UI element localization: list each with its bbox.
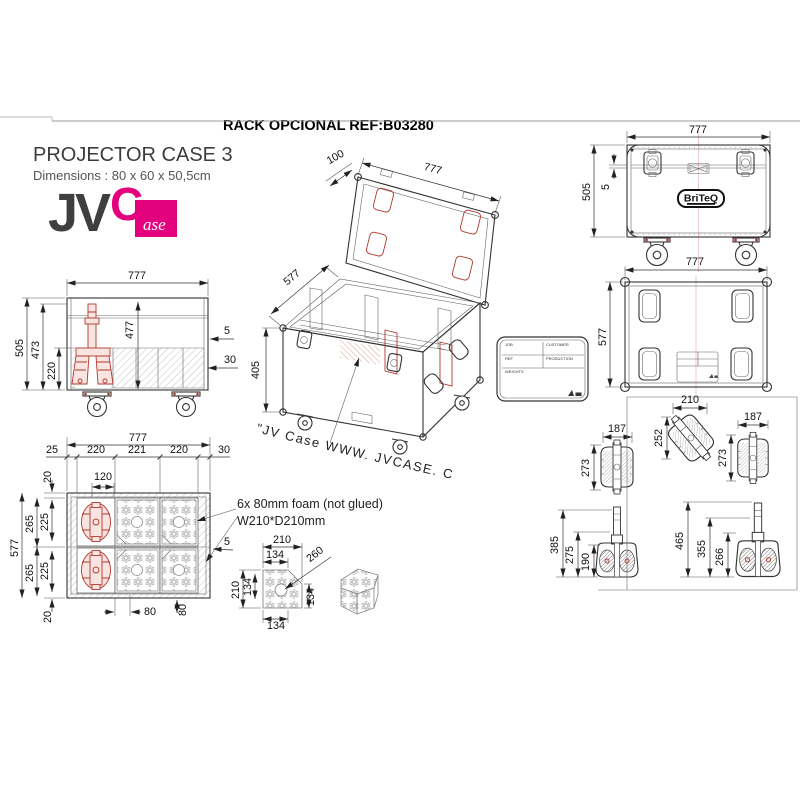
dim-label: 187 bbox=[608, 423, 626, 435]
dim-label: 355 bbox=[696, 540, 708, 558]
dim-label: 220 bbox=[87, 444, 105, 456]
dim-label: 134 bbox=[266, 549, 284, 561]
projector-section bbox=[72, 304, 113, 388]
dim-label: 120 bbox=[94, 471, 112, 483]
dim-label: 187 bbox=[744, 411, 762, 423]
dim-label: 225 bbox=[39, 562, 51, 580]
dim-label: 5 bbox=[600, 184, 612, 190]
dim-label: 273 bbox=[717, 449, 729, 467]
dim-label: 220 bbox=[46, 362, 58, 380]
dim-label: 477 bbox=[124, 321, 136, 339]
dim-label: 20 bbox=[42, 471, 54, 483]
dim-label: 777 bbox=[689, 124, 707, 136]
dim-label: 473 bbox=[30, 341, 42, 359]
briteq-logo: BriTeQ bbox=[678, 190, 724, 207]
dim-label: 30 bbox=[218, 444, 230, 456]
dim-label: 220 bbox=[170, 444, 188, 456]
iso-caption: "JV Case WWW. JVCASE. COM"LOGO bbox=[0, 0, 455, 482]
dim-label: 252 bbox=[653, 429, 665, 447]
projector-views-left: 187 273 385 275 190 bbox=[549, 423, 638, 577]
foam-plan-view: 777 25 220 221 220 30 1 bbox=[9, 432, 238, 623]
dim-label: 210 bbox=[273, 534, 291, 546]
dim-label: 265 bbox=[24, 564, 36, 582]
dim-label: 260 bbox=[304, 544, 326, 565]
card-field-weights: WEIGHTS bbox=[505, 369, 524, 374]
dim-label: 266 bbox=[714, 548, 726, 566]
dim-label: 5 bbox=[224, 325, 230, 337]
dim-label: 777 bbox=[128, 270, 146, 282]
front-view: BriTeQ bbox=[581, 124, 770, 272]
page: RACK OPCIONAL REF:B03280 PROJECTOR CASE … bbox=[0, 0, 800, 800]
dim-label: 777 bbox=[129, 432, 147, 444]
dim-label: 777 bbox=[423, 161, 444, 177]
dim-label: 134 bbox=[267, 620, 285, 632]
dim-label: 80 bbox=[177, 604, 189, 616]
dim-label: 505 bbox=[581, 183, 593, 201]
dim-label: 25 bbox=[46, 444, 58, 456]
technical-drawing-canvas: 100 777 577 405 "JV Case WWW. JVCASE. CO… bbox=[0, 0, 800, 800]
dim-label: 221 bbox=[128, 444, 146, 456]
briteq-logo-text: BriTeQ bbox=[684, 193, 718, 205]
dim-label: 405 bbox=[250, 361, 262, 379]
dim-label: 134 bbox=[242, 578, 254, 596]
dim-label: 273 bbox=[580, 459, 592, 477]
dim-label: 275 bbox=[564, 546, 576, 564]
dim-label: 777 bbox=[686, 256, 704, 268]
card-field-ref: REF bbox=[505, 356, 514, 361]
top-view: 777 577 bbox=[597, 256, 772, 394]
dim-label: 30 bbox=[224, 354, 236, 366]
lid-foam-recesses bbox=[366, 187, 482, 280]
dim-label: 577 bbox=[281, 267, 303, 288]
dim-label: 20 bbox=[42, 611, 54, 623]
dim-label: 210 bbox=[681, 394, 699, 406]
dim-label: 225 bbox=[39, 513, 51, 531]
iso-case-view: 100 777 577 405 "JV Case WWW. JVCASE. CO… bbox=[0, 0, 501, 482]
dim-label: 5 bbox=[224, 536, 230, 548]
dim-label: 385 bbox=[549, 536, 561, 554]
dim-label: 265 bbox=[24, 515, 36, 533]
dim-label: 577 bbox=[9, 539, 21, 557]
card-field-production: PRODUCTION bbox=[546, 356, 573, 361]
label-card: JOB CUSTOMER REF PRODUCTION WEIGHTS bbox=[497, 337, 588, 401]
dim-label: 80 bbox=[144, 606, 156, 618]
section-view: 777 505 473 220 477 5 30 bbox=[14, 270, 238, 417]
scan-artifact-lines bbox=[0, 117, 800, 121]
dim-label: 100 bbox=[325, 148, 347, 167]
card-field-job: JOB bbox=[505, 342, 513, 347]
interior-dividers bbox=[300, 288, 452, 424]
foam-iso-block bbox=[341, 569, 378, 614]
dim-label: 210 bbox=[230, 581, 242, 599]
section-casters bbox=[83, 392, 200, 417]
card-field-customer: CUSTOMER bbox=[546, 342, 569, 347]
dim-label: 190 bbox=[580, 553, 592, 571]
front-dimensions: 777 505 5 bbox=[581, 124, 770, 237]
front-latches bbox=[644, 150, 754, 177]
top-label-card bbox=[677, 352, 718, 382]
dim-label: 134 bbox=[305, 588, 317, 606]
foam-detail-view: 210 134 210 134 134 134 260 bbox=[230, 534, 378, 632]
dim-label: 577 bbox=[597, 328, 609, 346]
dim-label: 505 bbox=[14, 339, 26, 357]
dim-label: 465 bbox=[674, 532, 686, 550]
